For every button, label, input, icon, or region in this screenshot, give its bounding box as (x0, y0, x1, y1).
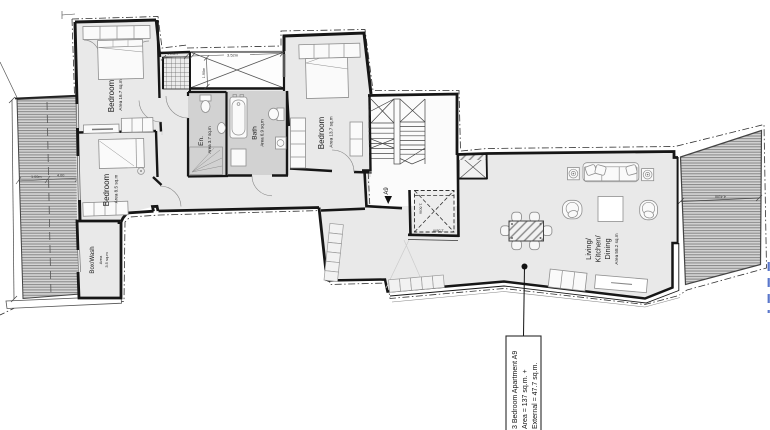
svg-text:Area 6.9 sq.m: Area 6.9 sq.m (260, 119, 265, 147)
svg-text:Bedroom: Bedroom (102, 173, 111, 206)
svg-text:1.90m: 1.90m (202, 68, 206, 79)
svg-text:3 Bedroom Apartment A9: 3 Bedroom Apartment A9 (512, 351, 519, 429)
svg-text:3.52m: 3.52m (227, 53, 239, 58)
svg-text:Area 13.7 sq.m: Area 13.7 sq.m (329, 116, 334, 147)
svg-text:Area 3.7 sq.m: Area 3.7 sq.m (207, 126, 212, 154)
svg-text:Living/: Living/ (584, 237, 593, 260)
svg-text:Dining: Dining (603, 238, 612, 259)
svg-text:Bedroom: Bedroom (107, 79, 116, 112)
svg-text:En.: En. (198, 136, 205, 146)
svg-text:1.20m: 1.20m (167, 52, 178, 56)
svg-text:3.5 sq.m: 3.5 sq.m (104, 252, 109, 268)
svg-text:Area 8.5 sq.m: Area 8.5 sq.m (114, 175, 119, 204)
svg-text:1.58m: 1.58m (432, 229, 444, 234)
svg-text:A9: A9 (384, 187, 390, 195)
svg-text:Area 16.7 sq.m: Area 16.7 sq.m (118, 79, 123, 110)
svg-text:Area: Area (98, 255, 103, 264)
svg-text:4.00: 4.00 (57, 174, 64, 178)
svg-text:Area 58.2 sq.m: Area 58.2 sq.m (614, 233, 619, 264)
svg-text:Kitchen/: Kitchen/ (594, 235, 603, 263)
svg-text:Bedroom: Bedroom (317, 116, 326, 149)
svg-text:1.00m: 1.00m (31, 175, 42, 179)
svg-text:External = 47.7 sq.m.: External = 47.7 sq.m. (532, 363, 539, 429)
svg-text:Box/Wash: Box/Wash (90, 246, 96, 273)
svg-text:Bath: Bath (252, 126, 259, 140)
svg-text:1.60m: 1.60m (419, 203, 424, 215)
svg-text:Area = 137 sq.m. +: Area = 137 sq.m. + (522, 369, 529, 429)
svg-text:4.43m: 4.43m (714, 195, 726, 200)
